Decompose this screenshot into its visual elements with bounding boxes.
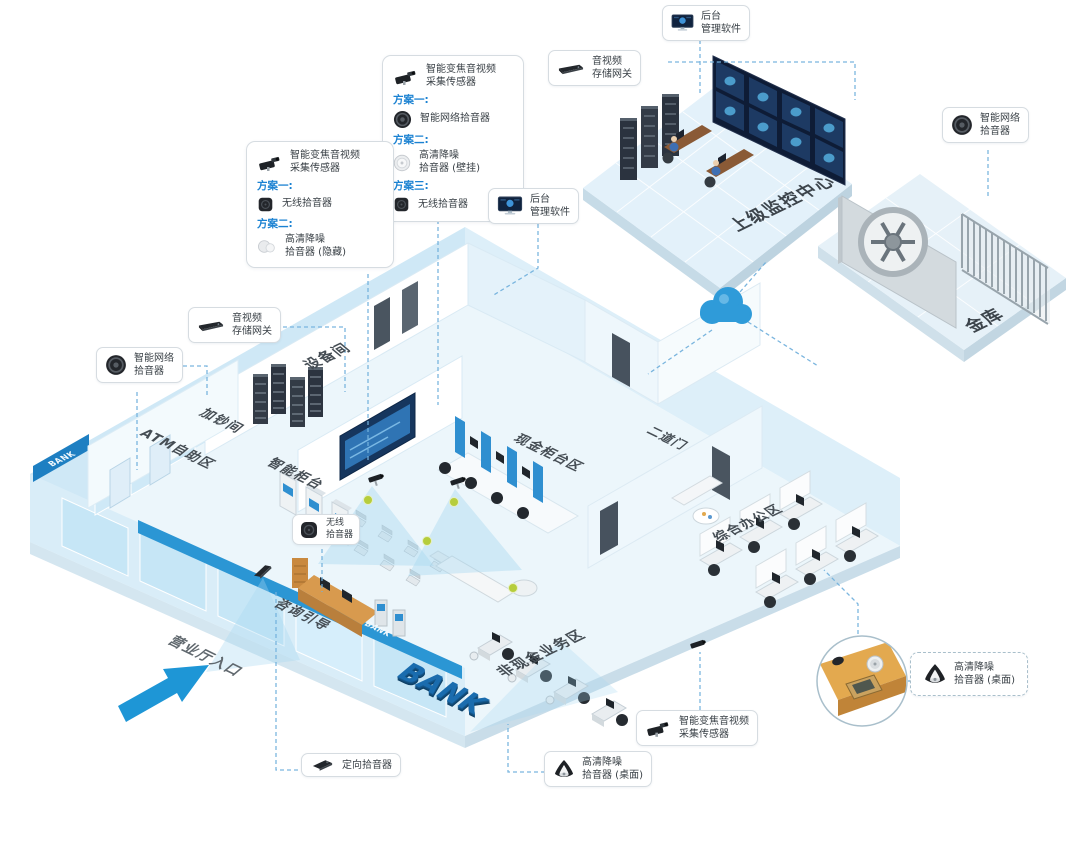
monitor-icon (497, 196, 523, 216)
desk-inset-circle (817, 636, 907, 726)
callout-desktop-mic-right: 高清降噪拾音器 (桌面) (910, 652, 1028, 696)
callout-directional-mic: 定向拾音器 (301, 753, 401, 777)
vault-door (858, 207, 928, 277)
callout-av-storage-gateway-left: 音视频存储网关 (188, 307, 281, 343)
callout-zoom-sensor-bottom: 智能变焦音视频采集传感器 (636, 710, 758, 746)
main-building (30, 227, 900, 748)
plan2-label: 方案二: (257, 218, 383, 231)
storage-gateway-icon (557, 62, 585, 75)
desktop-mic-icon (923, 663, 947, 685)
desktop-mic-icon (553, 759, 575, 779)
callout-backend-software-top: 后台管理软件 (662, 5, 750, 41)
vault-room (818, 174, 1066, 362)
callout-network-mic-right: 智能网络拾音器 (942, 107, 1029, 143)
network-mic-icon (105, 354, 127, 376)
callout-wireless-mic-floor: 无线拾音器 (292, 514, 360, 545)
hidden-mic-icon (257, 239, 277, 254)
ptz-camera-icon (645, 719, 672, 738)
wireless-mic-icon (257, 196, 274, 213)
monitor-icon (671, 14, 694, 32)
callout-backend-software-mid: 后台管理软件 (488, 188, 579, 224)
wireless-mic-icon (393, 196, 410, 213)
plan2-label: 方案二: (393, 134, 513, 147)
callout-network-mic-left: 智能网络拾音器 (96, 347, 183, 383)
network-mic-icon (951, 114, 973, 136)
isometric-scene (0, 0, 1080, 844)
callout-av-storage-gateway-top: 音视频存储网关 (548, 50, 641, 86)
directional-mic-icon (310, 758, 335, 772)
ptz-camera-icon (393, 68, 419, 86)
bank-monitoring-diagram: 上级监控中心 金库 设备间 加钞间 ATM自助区 智能柜台 现金柜台区 二道门 … (0, 0, 1080, 844)
storage-gateway-icon (197, 319, 225, 332)
wall-mic-icon (393, 154, 411, 172)
callout-plan-lobby: 智能变焦音视频采集传感器 方案一: 无线拾音器 方案二: 高清降噪拾音器 (隐藏… (246, 141, 394, 268)
ptz-camera-icon (257, 154, 283, 172)
entrance-arrow (118, 665, 209, 722)
wireless-mic-icon (299, 520, 319, 540)
network-mic-icon (393, 110, 412, 129)
plan1-label: 方案一: (257, 180, 383, 193)
callout-desktop-mic-bottom: 高清降噪拾音器 (桌面) (544, 751, 652, 787)
plan1-label: 方案一: (393, 94, 513, 107)
